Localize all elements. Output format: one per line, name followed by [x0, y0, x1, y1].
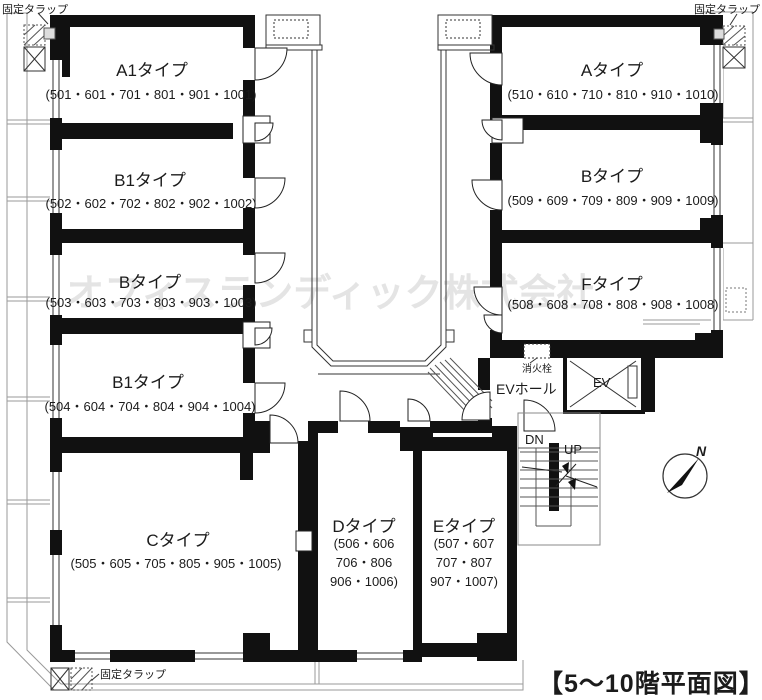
room-f-name: Fタイプ: [581, 270, 642, 295]
stairs-up-label: UP: [564, 442, 582, 457]
room-c-name: Cタイプ: [146, 526, 209, 551]
room-b1b-name: B1タイプ: [112, 368, 184, 393]
room-a-name: Aタイプ: [581, 56, 643, 81]
room-b1a-name: B1タイプ: [114, 166, 186, 191]
fire-hydrant-label: 消火栓: [522, 360, 552, 375]
ev-label: EV: [593, 375, 610, 390]
fixed-ladder-label-top-left: 固定タラップ: [2, 1, 68, 17]
room-c-units: (505・605・705・805・905・1005): [70, 553, 281, 572]
north-label: N: [696, 443, 706, 459]
escape-hatch-icon: [726, 288, 746, 312]
room-b2-units: (509・609・709・809・909・1009): [507, 190, 718, 209]
fixed-ladder-label-bottom-left: 固定タラップ: [100, 666, 166, 682]
courtyard-lines: [266, 15, 494, 374]
ev-hall-label: EVホール: [496, 379, 557, 399]
room-b1a-units: (502・602・702・802・902・1002): [45, 193, 256, 212]
plan-caption: 【5〜10階平面図】: [538, 664, 762, 700]
room-a-units: (510・610・710・810・910・1010): [507, 84, 718, 103]
room-a1-units: (501・601・701・801・901・1001): [45, 84, 256, 103]
room-b-units: (503・603・703・803・903・1003): [45, 292, 256, 311]
room-d-units: (506・606 706・806 906・1006): [330, 534, 398, 591]
floor-plan-drawing: [0, 0, 762, 700]
fixed-ladder-label-top-right: 固定タラップ: [694, 1, 760, 17]
room-f-units: (508・608・708・808・908・1008): [507, 294, 718, 313]
floor-plan-page: オフィスランディック株式会社: [0, 0, 762, 700]
room-b1b-units: (504・604・704・804・904・1004): [44, 396, 255, 415]
room-b2-name: Bタイプ: [581, 162, 643, 187]
room-b-name: Bタイプ: [119, 268, 181, 293]
north-arrow-icon: [663, 454, 707, 498]
room-e-units: (507・607 707・807 907・1007): [430, 534, 498, 591]
room-a1-name: A1タイプ: [116, 56, 188, 81]
ladder-icon-bottom-left: [51, 668, 99, 690]
stairs-down-label: DN: [525, 432, 544, 447]
